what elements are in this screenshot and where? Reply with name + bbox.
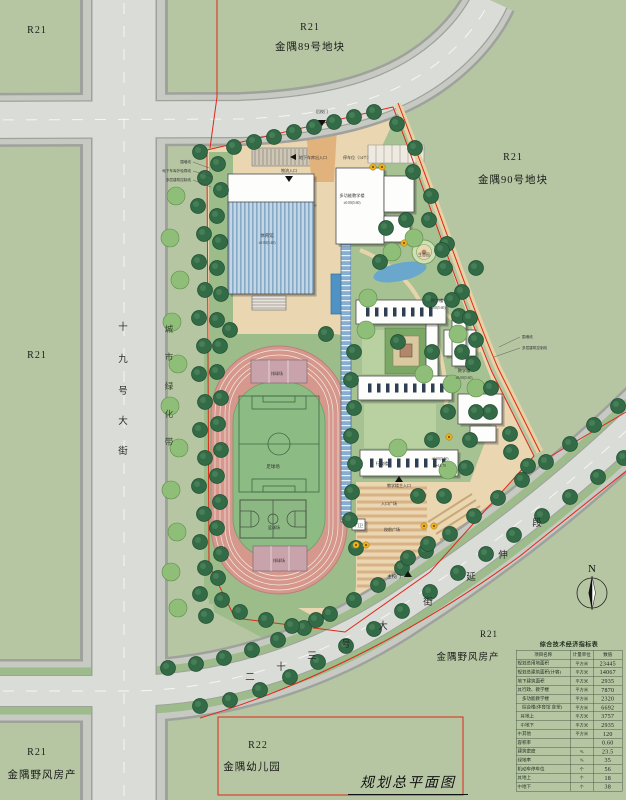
street-name-char: 延 <box>466 571 476 583</box>
tree-highlight <box>375 257 381 263</box>
cell-value: 35 <box>593 756 622 765</box>
plot-label: R21 <box>27 747 47 758</box>
cell-value: 23445 <box>593 659 622 668</box>
tree-highlight <box>517 475 523 481</box>
tree-highlight <box>439 491 445 497</box>
table-row: 中其他平方米120 <box>516 729 622 738</box>
cell-name: 其行政、教学楼 <box>516 685 570 694</box>
tree-highlight <box>213 419 219 425</box>
tree-highlight <box>201 611 207 617</box>
cell-unit: 平方米 <box>570 685 593 694</box>
cell-value: 14067 <box>593 668 622 677</box>
site-label-ctrl-r: 多层建筑控制线 <box>522 345 548 350</box>
bush <box>405 229 423 247</box>
tree-highlight <box>493 493 499 499</box>
cell-name: 绿地率 <box>516 756 570 765</box>
tree-highlight <box>247 645 253 651</box>
site-label-control-line: 多层建筑控制线 <box>166 177 192 182</box>
street-name-char: 带 <box>165 437 174 447</box>
bush <box>171 271 189 289</box>
tree-highlight <box>426 191 432 197</box>
tree-highlight <box>225 325 231 331</box>
site-label-gym: 体育馆 <box>260 232 274 239</box>
table-header-row: 项目名称 计量单位 数值 <box>516 650 622 659</box>
bush <box>415 365 433 383</box>
tree-highlight <box>217 595 223 601</box>
bush <box>169 599 187 617</box>
tree-highlight <box>200 453 206 459</box>
tree-highlight <box>321 329 327 335</box>
tree-highlight <box>212 367 218 373</box>
cell-unit: 个 <box>570 782 593 791</box>
cell-name: 综合楼(体育馆 食堂) <box>516 703 570 712</box>
tree-highlight <box>619 453 625 459</box>
street-name-char: 十 <box>118 321 128 333</box>
cell-name: 规划总用地面积 <box>516 659 570 668</box>
tree-highlight <box>212 315 218 321</box>
tree-highlight <box>212 211 218 217</box>
street-name-char: 大 <box>118 415 128 427</box>
tree-highlight <box>523 461 529 467</box>
table-row: 其地上平方米3757 <box>516 712 622 721</box>
site-label-multi: 多功能教学楼 <box>339 192 364 199</box>
tree-highlight <box>285 672 291 678</box>
table-row: 综合楼(体育馆 食堂)平方米6692 <box>516 703 622 712</box>
tree-highlight <box>468 359 474 365</box>
tree-highlight <box>349 112 355 118</box>
tree-highlight <box>397 563 403 569</box>
street-name-char: 号 <box>118 386 128 397</box>
bush <box>359 289 377 307</box>
plot-label: R21 <box>27 350 47 361</box>
tree-highlight <box>195 147 201 153</box>
tree-highlight <box>427 347 433 353</box>
tree-highlight <box>195 589 201 595</box>
cell-value: 18 <box>593 773 622 782</box>
site-label-gym-elev: ±0.00(5.40) <box>259 241 277 245</box>
bush <box>467 379 485 397</box>
tree-highlight <box>273 635 279 641</box>
tree-highlight <box>216 185 222 191</box>
cell-unit <box>570 738 593 747</box>
tree-highlight <box>261 615 267 621</box>
tree-highlight <box>163 663 169 669</box>
tree-highlight <box>453 568 459 574</box>
cell-unit: % <box>570 756 593 765</box>
tree-highlight <box>541 457 547 463</box>
tree-highlight <box>329 117 335 123</box>
cell-value: 2935 <box>593 677 622 686</box>
tree-highlight <box>299 623 305 629</box>
cell-name: 中地下 <box>516 721 570 730</box>
bush <box>449 325 467 343</box>
street-name-char: 大 <box>378 620 388 632</box>
tree-highlight <box>589 420 595 426</box>
site-label-guard: 门卫 <box>355 522 363 528</box>
cell-unit: 平方米 <box>570 668 593 677</box>
table-row: 机动车停车位个56 <box>516 765 622 774</box>
site-label-admin-h: h=14.70 <box>434 464 446 468</box>
cell-value: 2935 <box>593 721 622 730</box>
flower-center <box>381 166 383 168</box>
tree-highlight <box>505 429 511 435</box>
table-row: 其行政、教学楼平方米7870 <box>516 685 622 694</box>
tree-highlight <box>393 337 399 343</box>
site-label-volleyball-s: 排球场 <box>273 557 285 563</box>
tree-highlight <box>486 383 492 389</box>
plot-label: 金隅野风房产 <box>436 651 499 663</box>
tree-highlight <box>565 439 571 445</box>
bush <box>161 229 179 247</box>
cell-unit: 平方米 <box>570 729 593 738</box>
tree-highlight <box>425 587 431 593</box>
tree-highlight <box>199 509 205 515</box>
tree-highlight <box>216 289 222 295</box>
tree-highlight <box>349 595 355 601</box>
table-row: 建筑密度%23.5 <box>516 747 622 756</box>
tree-highlight <box>565 492 571 498</box>
tree-highlight <box>469 511 475 517</box>
tree-highlight <box>410 143 416 149</box>
street-name-char: 伸 <box>498 549 508 561</box>
flower-center <box>448 436 450 438</box>
site-label-multi-elev: ±0.00(5.60) <box>344 201 362 205</box>
plot-label: R21 <box>503 152 523 163</box>
indicator-table-grid: 项目名称 计量单位 数值 规划总用地面积平方米23445规划总建筑面积(计容)平… <box>516 650 623 791</box>
plot-label: 金隅90号地块 <box>478 173 548 186</box>
table-row: 容积率0.60 <box>516 738 622 747</box>
site-label-main-entry: 教学楼主入口 <box>387 482 411 488</box>
tree-highlight <box>347 487 353 493</box>
tree-highlight <box>309 122 315 128</box>
tree-highlight <box>506 447 512 453</box>
street-name-char: 城 <box>165 324 174 334</box>
site-label-teach1: 教学楼 <box>431 297 444 304</box>
tree-highlight <box>194 481 200 487</box>
cell-unit: 个 <box>570 765 593 774</box>
table-row: 中地下平方米2935 <box>516 721 622 730</box>
tree-highlight <box>199 341 205 347</box>
tree-highlight <box>465 435 471 441</box>
tree-highlight <box>345 515 351 521</box>
north-letter: N <box>588 563 596 575</box>
flower-center <box>365 544 367 546</box>
plot-label: 金隅幼儿园 <box>223 760 281 773</box>
cell-value: 56 <box>593 765 622 774</box>
tree-highlight <box>392 119 398 125</box>
tree-highlight <box>447 295 453 301</box>
building-windows <box>368 384 444 393</box>
site-label-admin: 行政楼 <box>376 460 389 467</box>
street-name-char: 三 <box>307 652 317 662</box>
col-header-name: 项目名称 <box>516 650 570 659</box>
site-label-teach2-elev: ±0.00(5.60) <box>456 376 474 380</box>
indicator-table: 综合技术经济指标表 项目名称 计量单位 数值 规划总用地面积平方米23445规划… <box>514 640 624 791</box>
cell-name: 规划总建筑面积(计容) <box>516 668 570 677</box>
tree-highlight <box>413 491 419 497</box>
cell-value: 120 <box>593 729 622 738</box>
tree-highlight <box>454 311 460 317</box>
tree-highlight <box>195 537 201 543</box>
bush <box>162 481 180 499</box>
tree-highlight <box>424 215 430 221</box>
tree-highlight <box>397 606 403 612</box>
bush <box>167 187 185 205</box>
tree-highlight <box>481 549 487 555</box>
tree-highlight <box>195 701 201 707</box>
col-header-unit: 计量单位 <box>570 650 593 659</box>
site-label-basketball: 篮球场 <box>268 524 280 530</box>
tree-highlight <box>216 549 222 555</box>
street-name-char: 绿 <box>165 381 174 391</box>
tree-highlight <box>194 369 200 375</box>
site-label-admin-elev: ±0.00(5.50) <box>432 457 450 461</box>
tree-highlight <box>537 511 543 517</box>
street-name-char: 号 <box>341 639 351 650</box>
table-row: 多功能教学楼平方米2320 <box>516 694 622 703</box>
tree-highlight <box>471 263 477 269</box>
building <box>384 176 414 212</box>
tree-highlight <box>457 287 463 293</box>
site-label-garage-entry: 地下车库出入口 <box>299 154 327 160</box>
tree-highlight <box>346 375 352 381</box>
plot-label: R21 <box>27 25 47 36</box>
tree-highlight <box>200 563 206 569</box>
cell-value: 38 <box>593 782 622 791</box>
cell-unit: 平方米 <box>570 694 593 703</box>
cell-name: 地下建筑面积 <box>516 677 570 686</box>
flower-center <box>372 166 374 168</box>
cell-name: 建筑密度 <box>516 747 570 756</box>
street-name-char: 段 <box>532 517 542 529</box>
site-label-logistics: 物流入口 <box>281 167 297 173</box>
building <box>228 202 314 294</box>
table-row: 中地下个38 <box>516 782 622 791</box>
bush <box>162 563 180 581</box>
plot-label: R21 <box>480 629 498 639</box>
bush <box>389 439 407 457</box>
tree-highlight <box>423 539 429 545</box>
cell-unit: % <box>570 747 593 756</box>
tree-highlight <box>440 263 446 269</box>
plot-label: R22 <box>248 740 268 751</box>
tree-highlight <box>215 341 221 347</box>
site-label-teach2: 教学楼 <box>458 367 471 374</box>
tree-highlight <box>269 132 275 138</box>
site-label-volleyball-n: 排球场 <box>271 370 283 376</box>
site-label-garage-line: 地下车库外轮廓线 <box>162 168 191 173</box>
cell-unit: 平方米 <box>570 712 593 721</box>
tree-highlight <box>443 407 449 413</box>
tree-highlight <box>613 401 619 407</box>
cell-name: 其地上 <box>516 712 570 721</box>
tree-highlight <box>381 223 387 229</box>
gym-stairs <box>252 296 286 310</box>
flower-center <box>403 242 405 244</box>
tree-highlight <box>403 553 409 559</box>
cell-name: 中地下 <box>516 782 570 791</box>
cell-value: 2320 <box>593 694 622 703</box>
street-name-char: 街 <box>423 596 433 608</box>
tree-highlight <box>219 653 225 659</box>
tree-highlight <box>445 529 451 535</box>
tree-highlight <box>191 659 197 665</box>
tree-highlight <box>200 397 206 403</box>
tree-highlight <box>349 403 355 409</box>
cell-name: 中其他 <box>516 729 570 738</box>
tree-highlight <box>235 607 241 613</box>
tree-highlight <box>373 580 379 586</box>
table-row: 其地上个18 <box>516 773 622 782</box>
cell-unit: 平方米 <box>570 677 593 686</box>
flower-center <box>423 525 425 527</box>
cell-unit: 个 <box>570 773 593 782</box>
tree-highlight <box>216 445 222 451</box>
site-label-gate-main: 主校门 <box>387 573 401 580</box>
cell-name: 机动车停车位 <box>516 765 570 774</box>
tree-highlight <box>289 127 295 133</box>
tree-highlight <box>509 530 515 536</box>
table-row: 规划总建筑面积(计容)平方米14067 <box>516 668 622 677</box>
bush <box>168 523 186 541</box>
site-label-soccer: 足球场 <box>266 463 280 470</box>
indicator-table-title: 综合技术经济指标表 <box>514 640 624 649</box>
cell-name: 容积率 <box>516 738 570 747</box>
basketball-court <box>240 500 306 538</box>
tree-highlight <box>200 285 206 291</box>
cell-value: 3757 <box>593 712 622 721</box>
building <box>228 174 314 204</box>
cell-unit: 平方米 <box>570 703 593 712</box>
cell-value: 23.5 <box>593 747 622 756</box>
flower-center <box>355 544 357 546</box>
site-label-eco: 生态园 <box>418 252 430 257</box>
tree-highlight <box>199 229 205 235</box>
tree-highlight <box>593 472 599 478</box>
tree-highlight <box>346 431 352 437</box>
tree-highlight <box>213 573 219 579</box>
site-plan-drawing: 后校门地下车库出入口停车位（14个）物流入口体育馆±0.00(5.40)多功能教… <box>0 0 626 800</box>
street-name-char: 化 <box>165 409 174 419</box>
flower-center <box>433 525 435 527</box>
tree-highlight <box>249 137 255 143</box>
drawing-title: 规划总平面图 <box>348 772 468 795</box>
building <box>336 168 384 244</box>
tree-highlight <box>471 335 477 341</box>
tree-highlight <box>457 347 463 353</box>
tree-highlight <box>461 463 467 469</box>
tree-highlight <box>311 615 317 621</box>
street-name-char: 十 <box>276 661 286 673</box>
tree-highlight <box>369 624 375 630</box>
tree-highlight <box>194 257 200 263</box>
tree-highlight <box>287 621 293 627</box>
tree-highlight <box>408 167 414 173</box>
tree-highlight <box>485 407 491 413</box>
tree-highlight <box>427 435 433 441</box>
street-name-char: 市 <box>165 352 174 362</box>
street-name-char: 二 <box>245 673 255 683</box>
tree-highlight <box>401 215 407 221</box>
tree-highlight <box>255 685 261 691</box>
cell-name: 多功能教学楼 <box>516 694 570 703</box>
tree-highlight <box>465 313 471 319</box>
plot-label: 金隅89号地块 <box>275 40 345 53</box>
bush <box>357 321 375 339</box>
site-label-teach1-elev: ±0.00(5.60) <box>429 306 447 310</box>
site-label-front-plaza: 校前广场 <box>384 526 400 532</box>
cell-value: 6692 <box>593 703 622 712</box>
tree-highlight <box>325 609 331 615</box>
cell-value: 7870 <box>593 685 622 694</box>
tree-highlight <box>225 695 231 701</box>
site-label-gate-back: 后校门 <box>316 108 328 114</box>
table-row: 规划总用地面积平方米23445 <box>516 659 622 668</box>
plot-label: 金隅野风房产 <box>8 768 77 781</box>
site-label-wall-r: 围墙线 <box>522 334 533 339</box>
site-label-parking: 停车位（14个） <box>343 154 371 160</box>
tree-highlight <box>215 237 221 243</box>
cell-unit: 平方米 <box>570 659 593 668</box>
cell-unit: 平方米 <box>570 721 593 730</box>
street-name-char: 九 <box>118 353 128 365</box>
tree-highlight <box>437 245 443 251</box>
tree-highlight <box>350 459 356 465</box>
tree-highlight <box>193 201 199 207</box>
site-label-wall-l: 围墙线 <box>180 159 191 164</box>
tree-highlight <box>471 407 477 413</box>
site-label-entry-plaza: 入口广场 <box>381 500 397 506</box>
tree-highlight <box>194 313 200 319</box>
table-row: 地下建筑面积平方米2935 <box>516 677 622 686</box>
tree-highlight <box>349 347 355 353</box>
tree-highlight <box>229 142 235 148</box>
plot-label: R21 <box>300 22 320 33</box>
tree-highlight <box>215 497 221 503</box>
table-row: 绿地率%35 <box>516 756 622 765</box>
street-name-char: 街 <box>118 445 128 457</box>
tree-highlight <box>213 159 219 165</box>
tree-highlight <box>212 523 218 529</box>
tree-highlight <box>212 471 218 477</box>
cell-name: 其地上 <box>516 773 570 782</box>
tree-highlight <box>212 263 218 269</box>
tree-highlight <box>369 107 375 113</box>
tree-highlight <box>216 393 222 399</box>
tree-highlight <box>195 425 201 431</box>
col-header-value: 数值 <box>593 650 622 659</box>
cell-value: 0.60 <box>593 738 622 747</box>
